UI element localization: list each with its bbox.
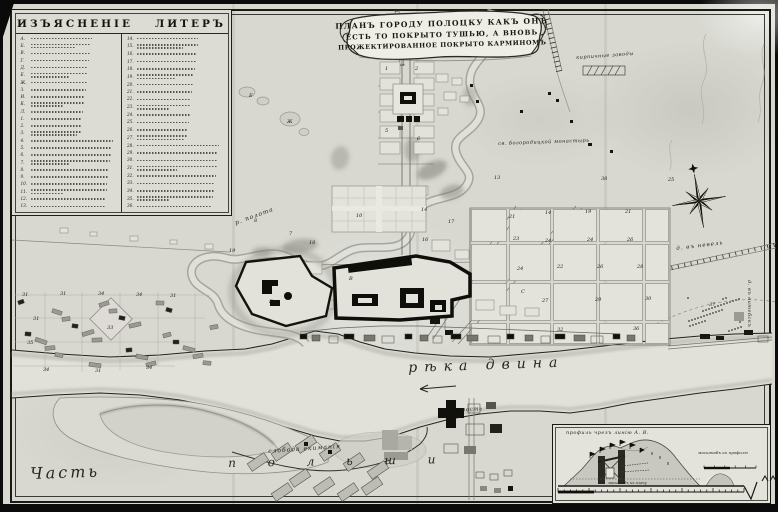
new-town-blocks — [472, 210, 669, 344]
legend-entry-key: 15. — [127, 44, 135, 48]
legend-entry: Д. — [21, 66, 118, 70]
legend-entry: 8. — [21, 168, 118, 172]
legend-frame: ИЗЪЯСНЕНІЕ ЛИТЕРЪ А.Б.В.Г.Д.Е.Ж.З.И.К.Л.… — [15, 13, 229, 213]
legend-entry-key: 35. — [127, 197, 135, 201]
inset-scale-plan-label: масштабъ къ плану — [608, 481, 647, 485]
legend-entry-key: 7. — [21, 161, 29, 165]
legend-entry: 36. — [127, 204, 224, 208]
legend-entry-key: Е. — [21, 73, 29, 77]
legend-entry: 27. — [127, 135, 224, 140]
legend-entry-key: Б. — [21, 44, 29, 48]
legend-entry-key: З. — [21, 88, 29, 92]
legend-entry: 14. — [127, 37, 224, 41]
compass-rose-icon — [672, 163, 725, 228]
legend-entry-key: 24. — [127, 113, 135, 117]
legend-entry: Б. — [21, 44, 118, 49]
legend-entry: 12. — [21, 197, 118, 201]
legend-entry: 19. — [127, 74, 224, 79]
legend-entry: Ж. — [21, 81, 118, 85]
legend-entry: Г. — [21, 59, 118, 63]
legend-entry-key: Г. — [21, 59, 29, 63]
legend-entry: 1. — [21, 117, 118, 121]
market-building-court — [404, 96, 412, 100]
legend-entry: 30. — [127, 158, 224, 162]
legend-entry-key: Ж. — [21, 81, 29, 85]
legend-entry: 11. — [21, 189, 118, 194]
legend-entry: А. — [21, 37, 118, 41]
legend-entry-key: 17. — [127, 60, 135, 64]
legend-entry: 6. — [21, 153, 118, 157]
legend-entry: Л. — [21, 110, 118, 114]
legend-entry: 3. — [21, 131, 118, 136]
legend-entry-key: 16. — [127, 52, 135, 56]
legend-entry-key: 18. — [127, 67, 135, 71]
legend-entry: 21. — [127, 90, 224, 94]
legend-entry-key: 4. — [21, 139, 29, 143]
legend-entry: 2. — [21, 124, 118, 128]
legend-entry: 17. — [127, 60, 224, 64]
legend-panel: ИЗЪЯСНЕНІЕ ЛИТЕРЪ А.Б.В.Г.Д.Е.Ж.З.И.К.Л.… — [11, 9, 232, 216]
legend-entry-key: 6. — [21, 153, 29, 157]
title-cartouche: ПЛАНЪ ГОРОДУ ПОЛОЦКУ КАКЪ ОНЪ ЕСТЬ ТО ПО… — [335, 5, 551, 63]
cartouche-text: ПЛАНЪ ГОРОДУ ПОЛОЦКУ КАКЪ ОНЪ ЕСТЬ ТО ПО… — [354, 11, 529, 58]
legend-entry: 10. — [21, 182, 118, 186]
legend-entry-key: 32. — [127, 174, 135, 178]
legend-entry-key: К. — [21, 102, 29, 106]
legend-entry: 29. — [127, 151, 224, 155]
legend-entry: К. — [21, 102, 118, 107]
diamond-plot — [90, 298, 132, 340]
legend-entry: 25. — [127, 120, 224, 124]
legend-entry: 23. — [127, 105, 224, 110]
legend-entry: 18. — [127, 67, 224, 71]
legend-entry-key: 3. — [21, 131, 29, 135]
legend-entry: 22. — [127, 97, 224, 101]
legend-entry: 4. — [21, 139, 118, 143]
legend-entry: 5. — [21, 146, 118, 150]
legend-entry: 33. — [127, 181, 224, 185]
legend-entry: Е. — [21, 73, 118, 78]
tree-cluster — [687, 297, 742, 332]
legend-entry-key: 21. — [127, 90, 135, 94]
legend-title-word2: ЛИТЕРЪ — [155, 18, 226, 30]
legend-entry-key: 22. — [127, 97, 135, 101]
legend-entry: 16. — [127, 52, 224, 56]
legend-entry: 24. — [127, 113, 224, 117]
legend-entry: 28. — [127, 144, 224, 148]
legend-entry-key: 27. — [127, 136, 135, 140]
legend-entry-key: 13. — [21, 204, 29, 208]
legend-entry-key: 8. — [21, 168, 29, 172]
legend-entry-key: 23. — [127, 105, 135, 109]
formal-garden — [332, 186, 426, 232]
legend-entry-key: А. — [21, 37, 29, 41]
legend-title-word1: ИЗЪЯСНЕНІЕ — [17, 18, 133, 30]
legend-entry: 32. — [127, 174, 224, 178]
legend-entry-key: 11. — [21, 190, 29, 194]
legend-entry: 20. — [127, 83, 224, 87]
right-bank-plot — [734, 312, 744, 321]
legend-entry-key: 33. — [127, 181, 135, 185]
legend-entry-key: 12. — [21, 197, 29, 201]
legend-columns: А.Б.В.Г.Д.Е.Ж.З.И.К.Л.1.2.3.4.5.6.7.8.9.… — [16, 33, 228, 212]
legend-entry: 15. — [127, 44, 224, 49]
legend-entry-key: 30. — [127, 158, 135, 162]
legend-entry-key: 36. — [127, 204, 135, 208]
legend-entry: 7. — [21, 160, 118, 165]
legend-entry-key: В. — [21, 51, 29, 55]
legend-entry-key: 5. — [21, 146, 29, 150]
streams-right — [670, 34, 764, 170]
legend-entry-key: 19. — [127, 75, 135, 79]
legend-entry-key: Д. — [21, 66, 29, 70]
inset-title: профиль чрезъ линію А. В. — [566, 430, 649, 436]
legend-entry-key: 34. — [127, 189, 135, 193]
legend-entry: 26. — [127, 128, 224, 132]
legend-entry: 34. — [127, 189, 224, 193]
legend-entry-key: 29. — [127, 151, 135, 155]
legend-entry-key: 9. — [21, 175, 29, 179]
legend-entry-key: 28. — [127, 144, 135, 148]
legend-entry-key: 10. — [21, 182, 29, 186]
legend-entry-key: И. — [21, 95, 29, 99]
scanned-map-photo: рѣка двинар. полотаслобода екиманіяЧасть… — [0, 0, 778, 512]
legend-entry: И. — [21, 95, 118, 99]
legend-entry-key: 14. — [127, 37, 135, 41]
legend-entry: З. — [21, 88, 118, 92]
legend-column-left: А.Б.В.Г.Д.Е.Ж.З.И.К.Л.1.2.3.4.5.6.7.8.9.… — [16, 34, 122, 212]
inset-profile-drawing — [558, 440, 776, 499]
legend-entry-key: 26. — [127, 128, 135, 132]
legend-entry-key: 25. — [127, 120, 135, 124]
ponds — [239, 87, 309, 136]
legend-entry-key: Л. — [21, 110, 29, 114]
legend-entry: 35. — [127, 196, 224, 201]
legend-entry: В. — [21, 51, 118, 55]
brick-factory — [583, 66, 625, 75]
inset-scale-profile-label: масштабъ къ профилю — [698, 450, 748, 455]
legend-entry: 31. — [127, 166, 224, 171]
legend-entry-key: 1. — [21, 117, 29, 121]
legend-entry: 9. — [21, 175, 118, 179]
legend-title: ИЗЪЯСНЕНІЕ ЛИТЕРЪ — [16, 14, 228, 33]
legend-column-right: 14.15.16.17.18.19.20.21.22.23.24.25.26.2… — [121, 34, 228, 212]
legend-entry-key: 31. — [127, 166, 135, 170]
legend-entry-key: 20. — [127, 83, 135, 87]
legend-entry: 13. — [21, 204, 118, 208]
legend-entry-key: 2. — [21, 124, 29, 128]
